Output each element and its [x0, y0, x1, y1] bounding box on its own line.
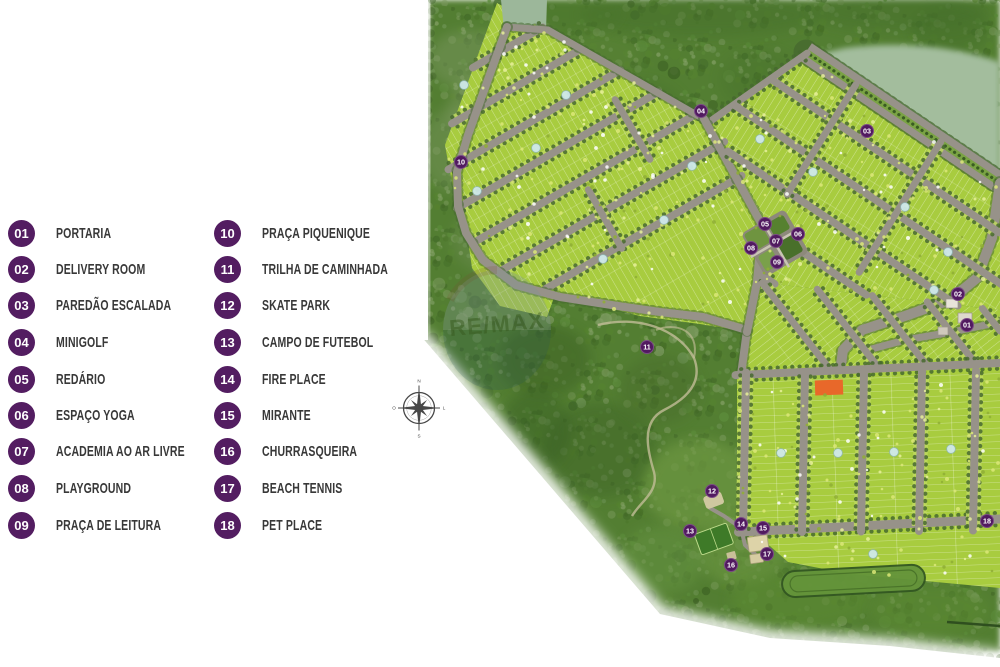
svg-text:02: 02: [954, 290, 962, 299]
svg-text:05: 05: [761, 220, 769, 229]
svg-text:15: 15: [759, 524, 767, 533]
svg-text:01: 01: [963, 321, 971, 330]
svg-text:06: 06: [794, 230, 802, 239]
svg-text:04: 04: [697, 107, 705, 116]
svg-text:18: 18: [983, 517, 991, 526]
svg-text:11: 11: [643, 343, 651, 352]
svg-text:10: 10: [457, 158, 465, 167]
svg-text:14: 14: [737, 520, 745, 529]
svg-text:12: 12: [708, 487, 716, 496]
svg-text:N: N: [417, 379, 420, 384]
svg-text:O: O: [392, 406, 396, 411]
svg-text:13: 13: [686, 527, 694, 536]
svg-text:09: 09: [773, 258, 781, 267]
svg-text:17: 17: [763, 550, 771, 559]
svg-text:08: 08: [747, 244, 755, 253]
svg-text:L: L: [443, 406, 446, 411]
svg-text:16: 16: [727, 561, 735, 570]
svg-text:S: S: [417, 434, 420, 439]
svg-text:03: 03: [863, 127, 871, 136]
svg-text:07: 07: [772, 237, 780, 246]
